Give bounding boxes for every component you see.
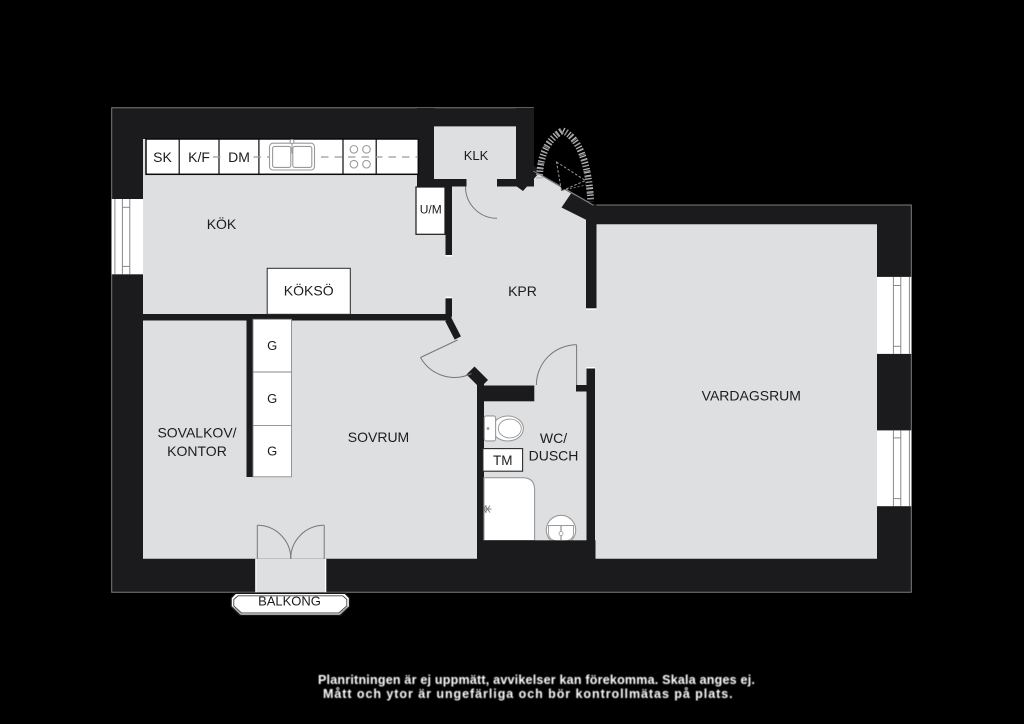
svg-text:KÖK: KÖK [207, 215, 237, 232]
svg-text:G: G [267, 444, 277, 459]
svg-text:BALKONG: BALKONG [258, 594, 321, 609]
svg-text:KÖKSÖ: KÖKSÖ [284, 282, 334, 299]
svg-text:KLK: KLK [464, 148, 489, 163]
svg-text:KONTOR: KONTOR [167, 443, 227, 459]
svg-text:SOVALKOV/: SOVALKOV/ [157, 424, 236, 440]
svg-text:Mått och ytor är ungefärliga o: Mått och ytor är ungefärliga och bör kon… [323, 687, 734, 701]
svg-text:VARDAGSRUM: VARDAGSRUM [702, 387, 801, 403]
svg-text:U/M: U/M [420, 203, 442, 217]
svg-text:G: G [267, 391, 277, 406]
svg-text:SK: SK [153, 149, 172, 165]
svg-text:SOVRUM: SOVRUM [348, 429, 409, 445]
svg-text:G: G [267, 338, 277, 353]
svg-text:TM: TM [493, 453, 513, 468]
svg-text:WC/: WC/ [540, 430, 567, 446]
svg-text:Planritningen är ej uppmätt, a: Planritningen är ej uppmätt, avvikelser … [318, 673, 755, 687]
svg-text:DM: DM [228, 149, 250, 165]
svg-text:DUSCH: DUSCH [529, 448, 579, 464]
svg-text:KPR: KPR [508, 283, 537, 299]
svg-text:K/F: K/F [188, 149, 210, 165]
